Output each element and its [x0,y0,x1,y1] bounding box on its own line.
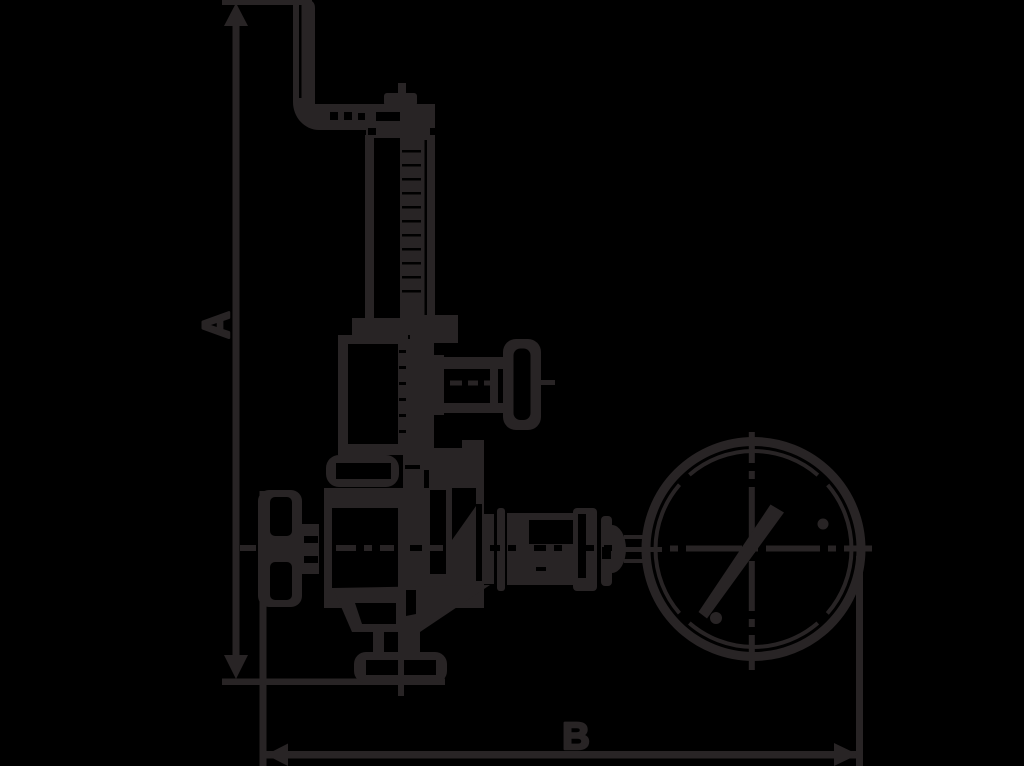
svg-text:A: A [196,311,238,338]
svg-text:B: B [562,716,589,758]
